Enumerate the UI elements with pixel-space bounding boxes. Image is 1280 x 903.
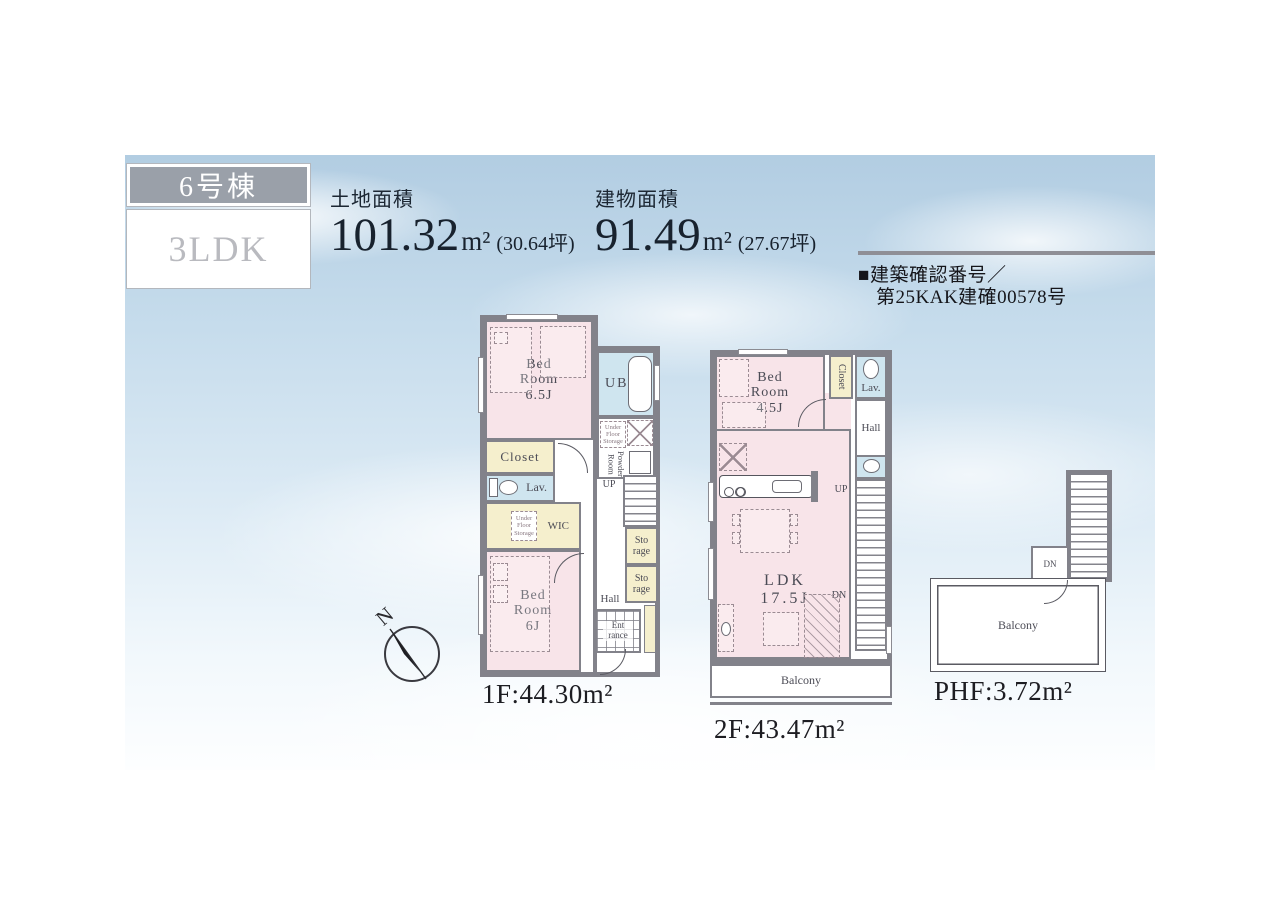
stove-icon: [723, 479, 749, 503]
pillow-1f-a: [494, 332, 508, 344]
room-2f-closet: Closet: [829, 355, 853, 399]
floorplan-phf: DN Balcony PHF:3.72m²: [926, 464, 1121, 724]
floorplan-2f: Bed Room 4.5J Closet Lav. Hall UP DN LDK…: [708, 342, 898, 762]
pillow-1f-c1: [493, 563, 508, 581]
chair-b: [732, 532, 740, 544]
chair-d: [790, 532, 798, 544]
vanity-1f-icon: [629, 451, 651, 474]
confirmation-line2: 第25KAK建確00578号: [876, 282, 1067, 309]
hall-1f-label: Hall: [591, 593, 629, 605]
plan-type-box: 3LDK: [126, 209, 311, 289]
room-1f-entrance: Ent rance: [595, 609, 641, 653]
land-area-label: 土地面積: [330, 183, 575, 212]
dining-table: [740, 509, 790, 553]
chair-a: [732, 514, 740, 526]
phf-dn-label: DN: [1044, 559, 1057, 569]
shoe-cabinet-1f: [644, 605, 656, 653]
toilet-tank-1f-icon: [489, 478, 498, 497]
balcony-phf: Balcony: [930, 578, 1106, 672]
window-2f-top: [738, 349, 788, 355]
room-1f-ub-label: UB: [605, 376, 628, 392]
room-1f-wic-label: WIC: [548, 520, 569, 533]
room-2f-hall-label: Hall: [862, 422, 881, 435]
tv-icon: [721, 622, 731, 636]
bed-2f-a: [722, 402, 766, 428]
room-1f-powder-label: Powder Room: [599, 449, 625, 479]
stairs-phf: [1071, 475, 1107, 577]
floorplan-1f: Bed Room 6.5J UB Under Floor Storage Pow…: [478, 313, 664, 723]
balcony-phf-label: Balcony: [998, 618, 1038, 633]
balcony-2f-rail: [710, 702, 892, 705]
room-2f-lav-label: Lav.: [861, 382, 880, 395]
phf-dn-box: DN: [1031, 546, 1069, 582]
under-floor-storage-1f-b: Under Floor Storage: [511, 511, 537, 541]
room-1f-closet: Closet: [485, 440, 555, 474]
land-area-block: 土地面積 101.32 m² (30.64坪): [330, 183, 575, 259]
phf-area-label: PHF:3.72m²: [934, 676, 1072, 707]
balcony-2f-label: Balcony: [781, 674, 821, 688]
pillow-1f-c2: [493, 585, 508, 603]
compass-circle: [385, 627, 439, 681]
stairs-1f: [623, 475, 658, 527]
building-area-value: 91.49: [595, 212, 701, 259]
room-1f-entrance-label: Ent rance: [603, 621, 633, 641]
under-floor-storage-1f-a: Under Floor Storage: [600, 421, 626, 448]
building-badge-label: 6号棟: [130, 167, 307, 203]
bathtub-icon: [628, 356, 652, 412]
building-area-label: 建物面積: [595, 183, 816, 212]
room-1f-storage-a-label: Sto rage: [629, 535, 655, 557]
stairs-2f-up-label: UP: [829, 484, 853, 495]
window-1f-left-b: [478, 575, 484, 635]
floor1-area-label: 1F:44.30m²: [482, 679, 613, 710]
washer-space-2f-icon: [719, 443, 747, 471]
building-area-block: 建物面積 91.49 m² (27.67坪): [595, 183, 816, 259]
window-1f-top: [506, 314, 558, 320]
room-1f-storage-a: Sto rage: [625, 527, 658, 565]
building-area-unit: m²: [703, 226, 732, 257]
room-1f-storage-b: Sto rage: [625, 565, 658, 603]
room-1f-closet-label: Closet: [500, 450, 539, 465]
window-2f-left-a: [708, 482, 714, 522]
low-table: [763, 612, 799, 646]
compass: N: [370, 602, 446, 688]
stairs-2f: [855, 479, 887, 651]
toilet-bowl-2f-icon: [863, 359, 879, 379]
desk-2f-a: [719, 359, 749, 397]
land-area-tsubo: (30.64坪): [496, 227, 574, 256]
chair-c: [790, 514, 798, 526]
bed-1f-b: [540, 326, 586, 378]
room-2f-closet-label: Closet: [835, 364, 847, 390]
sofa: [804, 594, 840, 658]
compass-needle-line: [390, 629, 426, 679]
building-area-tsubo: (27.67坪): [738, 227, 816, 256]
kitchen-sink-icon: [772, 480, 802, 493]
sink-2f-icon: [863, 459, 880, 473]
window-2f-right: [886, 626, 892, 654]
washer-space-1f-icon: [627, 420, 653, 446]
room-2f-hall: Hall: [855, 399, 887, 457]
room-1f-storage-b-label: Sto rage: [629, 573, 655, 595]
floor2-area-label: 2F:43.47m²: [714, 714, 845, 745]
window-1f-right: [654, 365, 660, 401]
compass-north-label: N: [371, 602, 398, 630]
confirmation-divider: [858, 251, 1155, 255]
room-1f-lav-label: Lav.: [526, 481, 547, 495]
window-1f-left-a: [478, 357, 484, 413]
stairs-1f-up-label: UP: [597, 479, 621, 490]
land-area-value: 101.32: [330, 212, 459, 259]
land-area-unit: m²: [461, 226, 490, 257]
kitchen-wall-stub: [811, 471, 818, 502]
building-badge: 6号棟: [126, 163, 311, 207]
toilet-bowl-1f-icon: [499, 480, 518, 495]
window-2f-left-b: [708, 548, 714, 600]
balcony-2f: Balcony: [710, 664, 892, 698]
